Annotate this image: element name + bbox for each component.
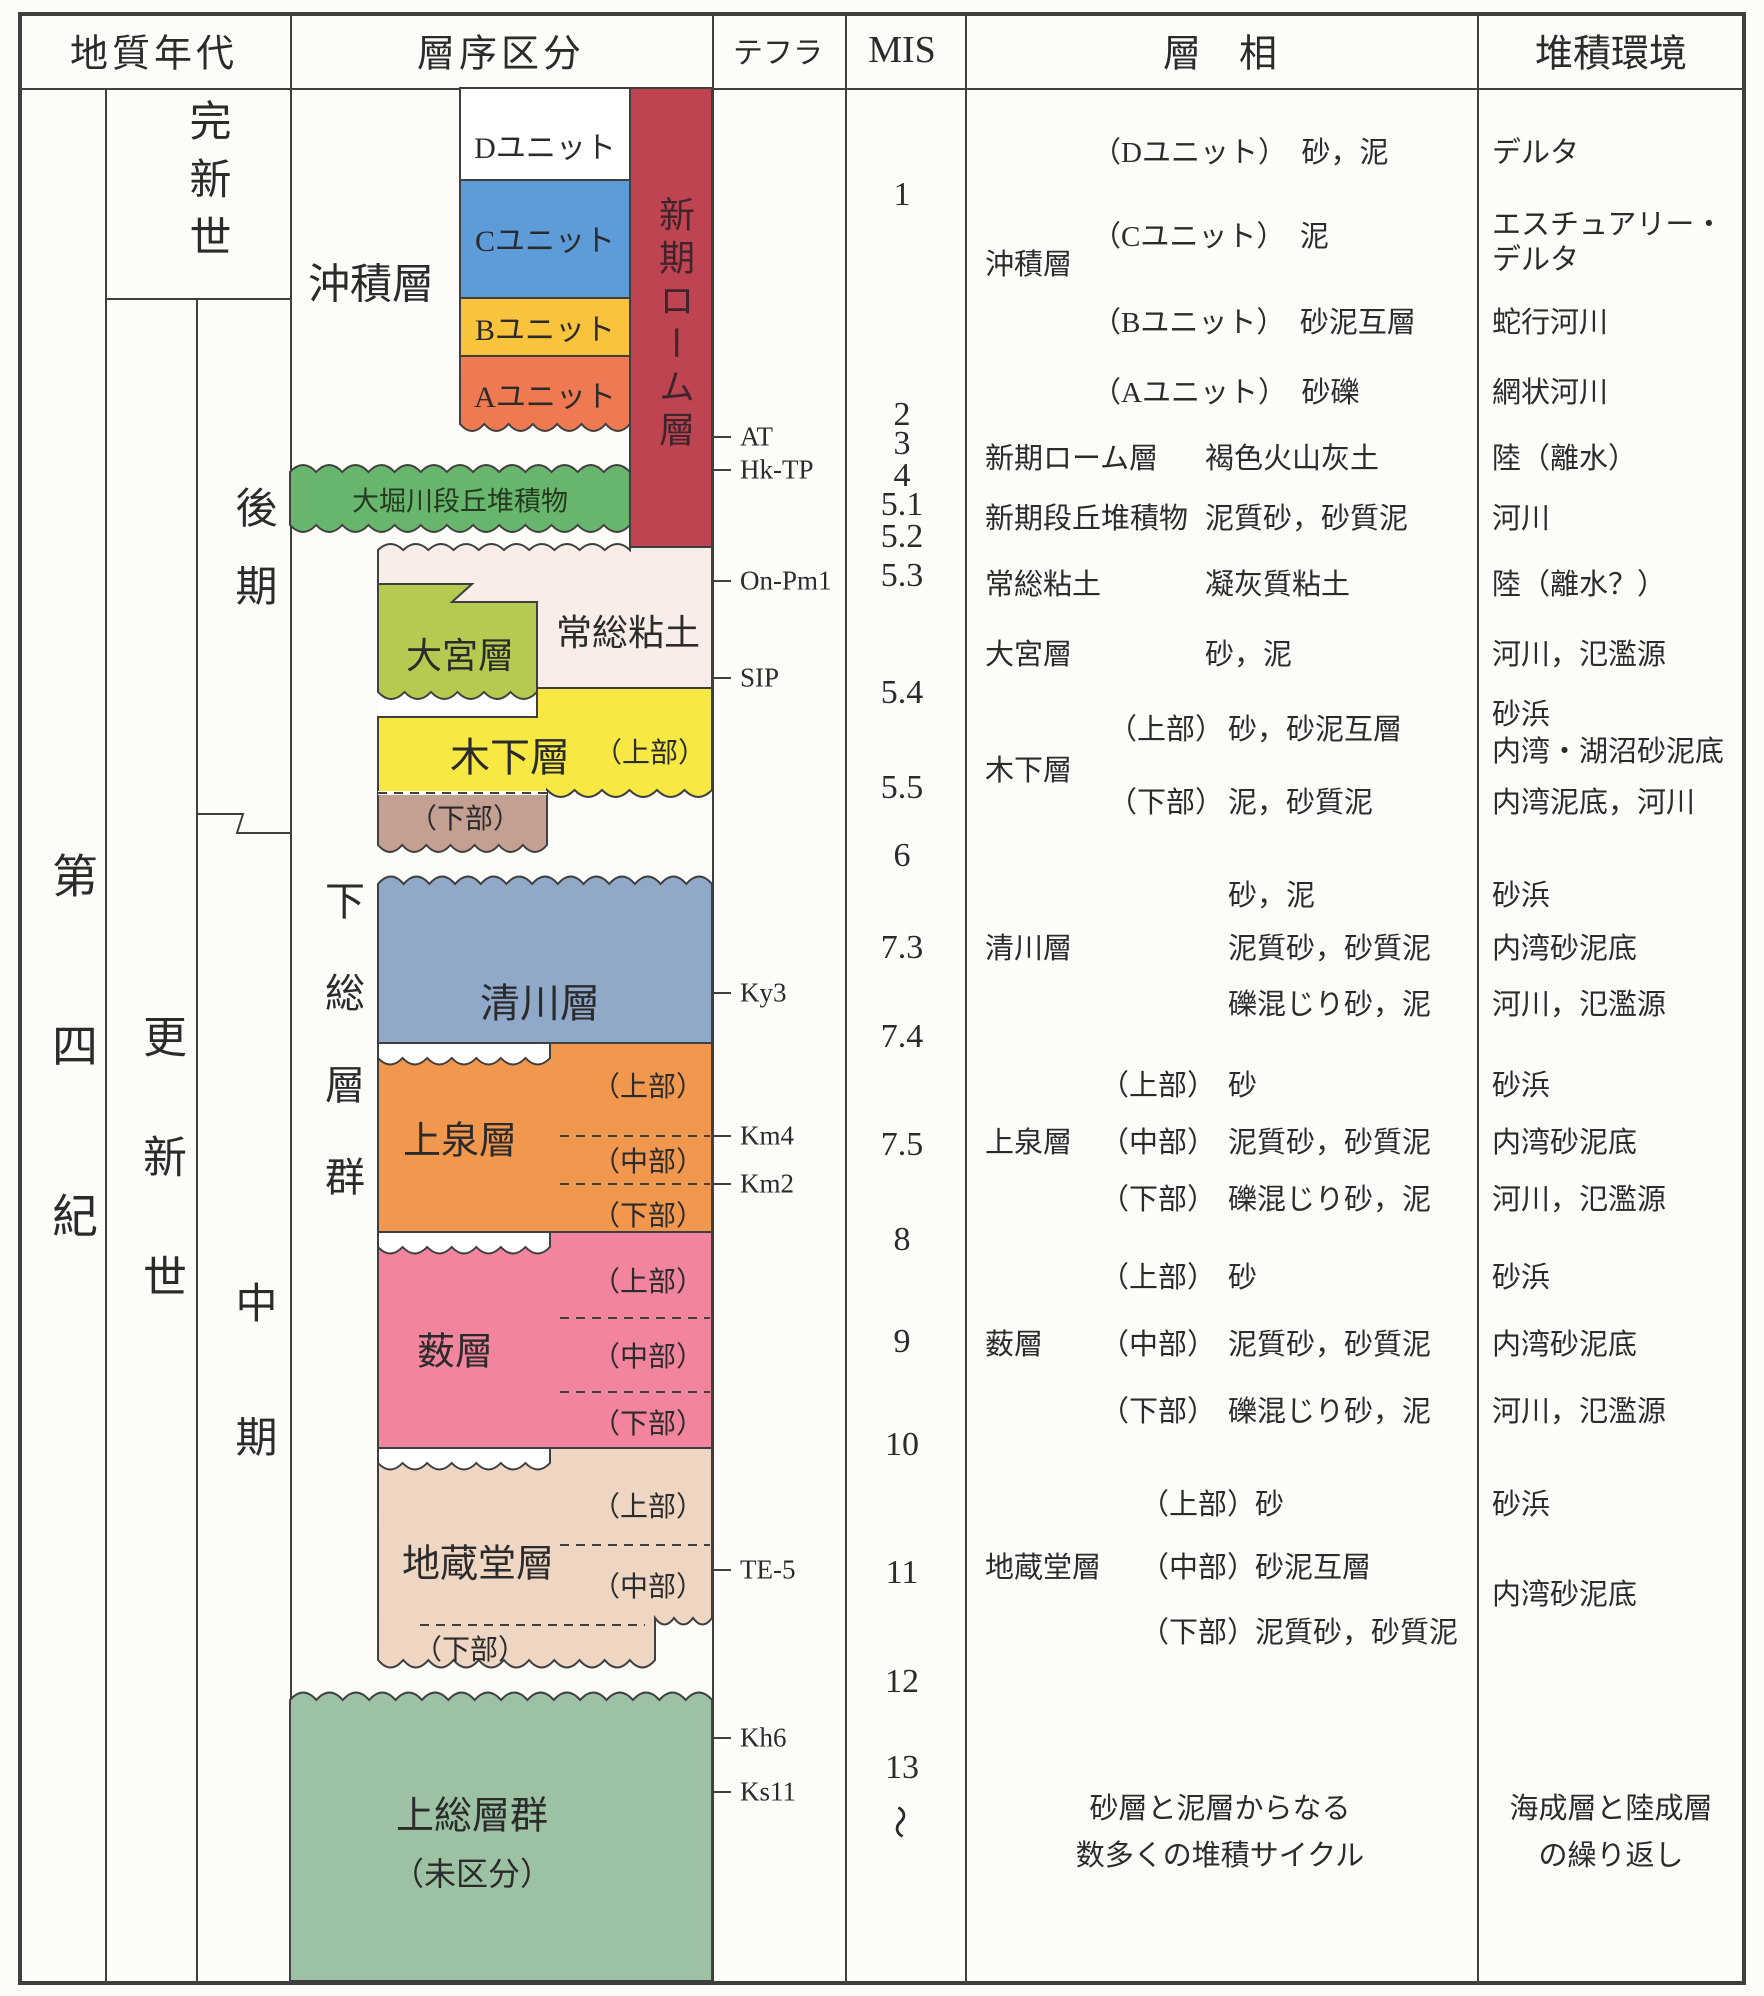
- row2-facies: 褐色火山灰土: [1205, 435, 1379, 477]
- col-line-strat: [290, 12, 292, 1981]
- header-era: 地質年代: [70, 23, 238, 78]
- label-rohm: 新期ローム層: [648, 196, 700, 454]
- row6-upper-env1: 砂浜: [1492, 691, 1550, 733]
- stratigraphy-diagram: 地質年代 層序区分 テフラ MIS 層 相 堆積環境 第四紀 完新世 更新世 後…: [0, 0, 1764, 1996]
- row10-middle-label: （中部）: [1140, 1544, 1256, 1586]
- row10-upper-env: 砂浜: [1492, 1481, 1550, 1523]
- label-kinoshita-upper: （上部）: [594, 731, 706, 771]
- tephra-ky3: Ky3: [740, 978, 787, 1009]
- row3-env: 河川: [1492, 495, 1550, 537]
- row6-lower-facies: 泥，砂質泥: [1228, 779, 1373, 821]
- border-top: [18, 12, 1746, 16]
- row9-upper-label: （上部）: [1100, 1254, 1216, 1296]
- row10-upper-label: （上部）: [1140, 1481, 1256, 1523]
- header-facies: 層 相: [1163, 23, 1277, 78]
- row4-facies: 凝灰質粘土: [1205, 561, 1350, 603]
- label-kinoshita: 木下層: [450, 725, 570, 783]
- row8-upper-label: （上部）: [1100, 1062, 1216, 1104]
- row6-name: 木下層: [985, 747, 1072, 789]
- tephra-onpm1: On-Pm1: [740, 566, 832, 597]
- row8-lower-label: （下部）: [1100, 1176, 1216, 1218]
- col-line-tephra: [712, 12, 714, 1981]
- row8-lower-facies: 礫混じり砂，泥: [1228, 1176, 1431, 1218]
- label-yabu: 薮層: [417, 1321, 493, 1376]
- label-yabu-lower: （下部）: [592, 1402, 704, 1442]
- row10-env: 内湾砂泥底: [1492, 1571, 1637, 1613]
- border-bottom: [18, 1981, 1746, 1985]
- label-ohori: 大堀川段丘堆積物: [352, 480, 568, 519]
- row1-env-a: 網状河川: [1492, 369, 1608, 411]
- row10-upper-facies: 砂: [1255, 1481, 1284, 1523]
- row9-upper-env: 砂浜: [1492, 1254, 1550, 1296]
- label-kiyokawa: 清川層: [480, 971, 600, 1029]
- mis-7-5: 7.5: [881, 1126, 924, 1164]
- row3-facies: 泥質砂，砂質泥: [1205, 495, 1408, 537]
- row10-lower-facies: 泥質砂，砂質泥: [1255, 1609, 1458, 1651]
- mis-continues: 〜: [878, 1805, 927, 1839]
- era-pleistocene: 更新世: [128, 1014, 192, 1374]
- row6-upper-facies: 砂，砂泥互層: [1228, 706, 1402, 748]
- row11-env1: 海成層と陸成層: [1509, 1785, 1712, 1827]
- row9-lower-env: 河川，氾濫源: [1492, 1388, 1666, 1430]
- row7-env2: 内湾砂泥底: [1492, 925, 1637, 967]
- row1-env-d: デルタ: [1492, 129, 1579, 171]
- label-unit-b: Bユニット: [475, 305, 615, 349]
- era-holocene: 完新世: [176, 99, 237, 273]
- row1-env-b: 蛇行河川: [1492, 299, 1608, 341]
- row1-facies-c: （Cユニット） 泥: [1092, 213, 1329, 255]
- label-yabu-upper: （上部）: [592, 1260, 704, 1300]
- era-late: 後期: [222, 486, 283, 642]
- jizodo-gap: [378, 1448, 550, 1470]
- col-line-era1: [105, 88, 107, 1981]
- label-shimousa: 下総層群: [312, 880, 370, 1248]
- row9-middle-env: 内湾砂泥底: [1492, 1321, 1637, 1363]
- mis-5-2: 5.2: [881, 518, 924, 556]
- mis-13: 13: [885, 1749, 919, 1787]
- tephra-km2: Km2: [740, 1169, 794, 1200]
- tephra-kh6: Kh6: [740, 1723, 787, 1754]
- border-right: [1742, 12, 1746, 1985]
- holocene-divider: [105, 298, 292, 300]
- mis-1: 1: [894, 176, 911, 214]
- mis-5-3: 5.3: [881, 557, 924, 595]
- header-tephra: テフラ: [733, 28, 823, 72]
- row8-middle-env: 内湾砂泥底: [1492, 1119, 1637, 1161]
- label-jizodo-middle: （中部）: [592, 1565, 704, 1605]
- row6-upper-label: （上部）: [1108, 706, 1224, 748]
- label-unit-c: Cユニット: [475, 216, 615, 260]
- row8-lower-env: 河川，氾濫源: [1492, 1176, 1666, 1218]
- col-line-mis: [845, 12, 847, 1981]
- tephra-sip: SIP: [740, 663, 779, 694]
- row7-env1: 砂浜: [1492, 872, 1550, 914]
- row7-facies2: 泥質砂，砂質泥: [1228, 925, 1431, 967]
- label-joso: 常総粘土: [556, 604, 700, 656]
- row9-lower-label: （下部）: [1100, 1388, 1216, 1430]
- label-kazusa-note: （未区分）: [392, 1849, 552, 1895]
- row5-facies: 砂，泥: [1205, 631, 1292, 673]
- row2-env: 陸（離水）: [1492, 435, 1637, 477]
- label-jizodo-lower: （下部）: [414, 1628, 526, 1668]
- row4-env: 陸（離水？）: [1492, 561, 1666, 603]
- label-omiya: 大宮層: [406, 627, 514, 679]
- row5-env: 河川，氾濫源: [1492, 631, 1666, 673]
- label-kamiizumi-middle: （中部）: [592, 1140, 704, 1180]
- mis-10: 10: [885, 1426, 919, 1464]
- border-left: [18, 12, 22, 1985]
- tephra-km4: Km4: [740, 1121, 794, 1152]
- row9-lower-facies: 礫混じり砂，泥: [1228, 1388, 1431, 1430]
- row3-name: 新期段丘堆積物: [985, 495, 1188, 537]
- label-kamiizumi-lower: （下部）: [592, 1194, 704, 1234]
- mis-5-5: 5.5: [881, 769, 924, 807]
- row1-name: 沖積層: [985, 241, 1072, 283]
- row6-lower-env: 内湾泥底，河川: [1492, 779, 1695, 821]
- row1-env-c2: デルタ: [1492, 236, 1579, 278]
- era-quaternary: 第四紀: [38, 852, 104, 1362]
- header-strat: 層序区分: [417, 23, 585, 78]
- col-line-era2: [196, 298, 198, 1981]
- mis-6: 6: [894, 837, 911, 875]
- label-kazusa: 上総層群: [396, 1785, 548, 1840]
- row4-name: 常総粘土: [985, 561, 1101, 603]
- tephra-hktp: Hk-TP: [740, 455, 814, 486]
- header-divider: [18, 88, 1746, 90]
- row6-upper-env2: 内湾・湖沼砂泥底: [1492, 728, 1724, 770]
- row8-middle-label: （中部）: [1100, 1119, 1216, 1161]
- omiya-gap: [378, 690, 537, 719]
- tephra-te5: TE-5: [740, 1555, 795, 1586]
- row8-name: 上泉層: [985, 1119, 1072, 1161]
- mis-7-3: 7.3: [881, 929, 924, 967]
- col-line-env: [1477, 12, 1479, 1981]
- row9-upper-facies: 砂: [1228, 1254, 1257, 1296]
- row6-lower-label: （下部）: [1108, 779, 1224, 821]
- row2-name: 新期ローム層: [985, 435, 1158, 477]
- mis-8: 8: [894, 1221, 911, 1259]
- row8-upper-env: 砂浜: [1492, 1062, 1550, 1104]
- label-jizodo: 地蔵堂層: [402, 1533, 554, 1588]
- row7-name: 清川層: [985, 925, 1072, 967]
- row9-middle-label: （中部）: [1100, 1321, 1216, 1363]
- label-unit-a: Aユニット: [474, 372, 616, 416]
- row7-facies3: 礫混じり砂，泥: [1228, 981, 1431, 1023]
- mis-7-4: 7.4: [881, 1018, 924, 1056]
- label-kinoshita-lower: （下部）: [409, 797, 521, 837]
- mis-11: 11: [886, 1554, 919, 1592]
- row5-name: 大宮層: [985, 631, 1072, 673]
- row9-name: 薮層: [985, 1321, 1043, 1363]
- row7-env3: 河川，氾濫源: [1492, 981, 1666, 1023]
- header-mis: MIS: [868, 28, 936, 72]
- label-chuseki: 沖積層: [308, 251, 434, 312]
- header-env: 堆積環境: [1535, 23, 1687, 78]
- row10-name: 地蔵堂層: [985, 1544, 1101, 1586]
- late-middle-step: [196, 814, 290, 833]
- mis-12: 12: [885, 1663, 919, 1701]
- row8-middle-facies: 泥質砂，砂質泥: [1228, 1119, 1431, 1161]
- row1-facies-a: （Aユニット） 砂礫: [1092, 369, 1359, 411]
- label-kamiizumi: 上泉層: [403, 1110, 517, 1165]
- row1-facies-b: （Bユニット） 砂泥互層: [1092, 299, 1416, 341]
- row10-lower-label: （下部）: [1140, 1609, 1256, 1651]
- row10-middle-facies: 砂泥互層: [1255, 1544, 1371, 1586]
- kamiizumi-gap: [378, 1043, 550, 1065]
- label-jizodo-upper: （上部）: [592, 1485, 704, 1525]
- era-middle: 中期: [222, 1281, 283, 1549]
- row11-facies1: 砂層と泥層からなる: [1089, 1785, 1350, 1827]
- label-yabu-middle: （中部）: [592, 1335, 704, 1375]
- tephra-ks11: Ks11: [740, 1777, 796, 1808]
- label-unit-d: Dユニット: [474, 123, 616, 167]
- label-kamiizumi-upper: （上部）: [592, 1065, 704, 1105]
- row9-middle-facies: 泥質砂，砂質泥: [1228, 1321, 1431, 1363]
- mis-9: 9: [894, 1323, 911, 1361]
- row1-facies-d: （Dユニット） 砂，泥: [1092, 129, 1388, 171]
- row11-facies2: 数多くの堆積サイクル: [1076, 1832, 1365, 1874]
- mis-5-4: 5.4: [881, 674, 924, 712]
- yabu-gap: [378, 1232, 550, 1254]
- col-line-facies: [965, 12, 967, 1981]
- row8-upper-facies: 砂: [1228, 1062, 1257, 1104]
- row7-facies1: 砂，泥: [1228, 872, 1315, 914]
- row11-env2: の繰り返し: [1538, 1832, 1683, 1874]
- tephra-at: AT: [740, 422, 773, 453]
